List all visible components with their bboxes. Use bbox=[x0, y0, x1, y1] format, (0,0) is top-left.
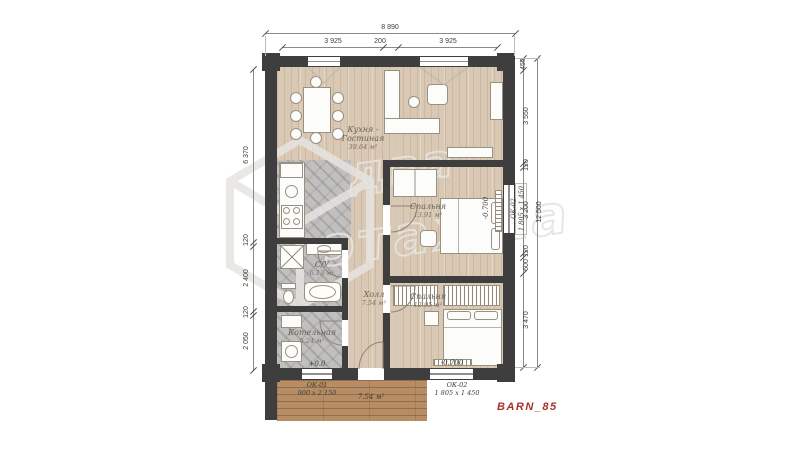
dim-top-seg3: 3 925 bbox=[418, 38, 478, 46]
dim-right-seg3: 120 bbox=[523, 151, 531, 179]
room-area: 13.91 м² bbox=[398, 211, 458, 220]
room-name: Кухня - bbox=[347, 125, 378, 134]
terrace-area-label: 7.54 м² bbox=[348, 393, 394, 402]
dim-right-overall: 12 500 bbox=[536, 189, 544, 235]
dim-left-seg2: 120 bbox=[243, 226, 251, 254]
dim-top-seg1: 3 925 bbox=[303, 38, 363, 46]
level-mark-ok02-bottom: -0.700 bbox=[434, 359, 470, 367]
room-label-hall: Холл 7.54 м² bbox=[354, 290, 394, 308]
window-size: 900 х 2 150 bbox=[298, 389, 337, 397]
window-open-mark bbox=[308, 67, 340, 83]
terrace-door-arc bbox=[359, 342, 383, 369]
dim-line-left bbox=[253, 69, 254, 370]
room-area: 39.64 м² bbox=[330, 143, 396, 152]
room-name: Спальня bbox=[410, 292, 446, 301]
room-name: Гостиная bbox=[342, 134, 385, 143]
dim-line-top-segments bbox=[282, 47, 497, 48]
room-name: Спальня bbox=[410, 202, 446, 211]
room-name: Котельная bbox=[288, 328, 336, 337]
level-mark-ok01: +0.0 bbox=[302, 360, 332, 368]
window-label-ok02-bottom: ОК-02 1 805 х 1 450 bbox=[428, 382, 486, 397]
dim-right-seg6: 600 bbox=[523, 251, 531, 279]
dim-ext bbox=[514, 36, 515, 56]
level-mark-ok02-right: -0.700 bbox=[482, 190, 490, 226]
window-size: 1 805 х 1 450 bbox=[434, 389, 479, 397]
dim-left-seg3: 2 400 bbox=[243, 258, 251, 298]
floor-plan-canvas: два этажка bbox=[0, 0, 800, 450]
room-area: 6.13 м² bbox=[304, 269, 340, 278]
window-label-ok01: ОК-01 900 х 2 150 bbox=[288, 382, 346, 397]
dim-left-seg1: 6 370 bbox=[243, 135, 251, 175]
door-swing-layer bbox=[0, 0, 800, 450]
room-name: Холл bbox=[364, 290, 385, 299]
dim-ext bbox=[515, 367, 540, 368]
dim-top-overall: 8 890 bbox=[355, 24, 425, 32]
dim-line-top-overall bbox=[265, 33, 515, 34]
room-label-bedroom2: Спальня 12.95 м² bbox=[398, 292, 458, 310]
dim-right-seg1: 450 bbox=[520, 49, 528, 79]
window-label-ok02-right: ОК-02 1 805 х 1 450 bbox=[511, 181, 526, 237]
dim-ext bbox=[515, 58, 540, 59]
room-area: 7.54 м² bbox=[348, 393, 394, 402]
dim-left-seg5: 2 050 bbox=[243, 321, 251, 361]
window-size: 1 805 х 1 450 bbox=[517, 186, 525, 231]
dim-ext bbox=[265, 36, 266, 56]
room-label-boiler: Котельная 5.24 м² bbox=[286, 328, 338, 346]
room-label-bathroom: С/У 6.13 м² bbox=[304, 260, 340, 278]
room-name: С/У bbox=[315, 260, 330, 269]
dim-right-seg2: 3 550 bbox=[523, 96, 531, 136]
dim-top-seg2: 200 bbox=[366, 38, 394, 46]
room-area: 7.54 м² bbox=[354, 299, 394, 308]
room-label-bedroom1: Спальня 13.91 м² bbox=[398, 202, 458, 220]
dim-right-seg7: 3 470 bbox=[523, 300, 531, 340]
plan-code: BARN_85 bbox=[497, 401, 558, 413]
window-open-mark bbox=[420, 67, 468, 85]
room-label-living: Кухня - Гостиная 39.64 м² bbox=[330, 125, 396, 152]
room-area: 12.95 м² bbox=[398, 301, 458, 310]
room-area: 5.24 м² bbox=[286, 337, 338, 346]
